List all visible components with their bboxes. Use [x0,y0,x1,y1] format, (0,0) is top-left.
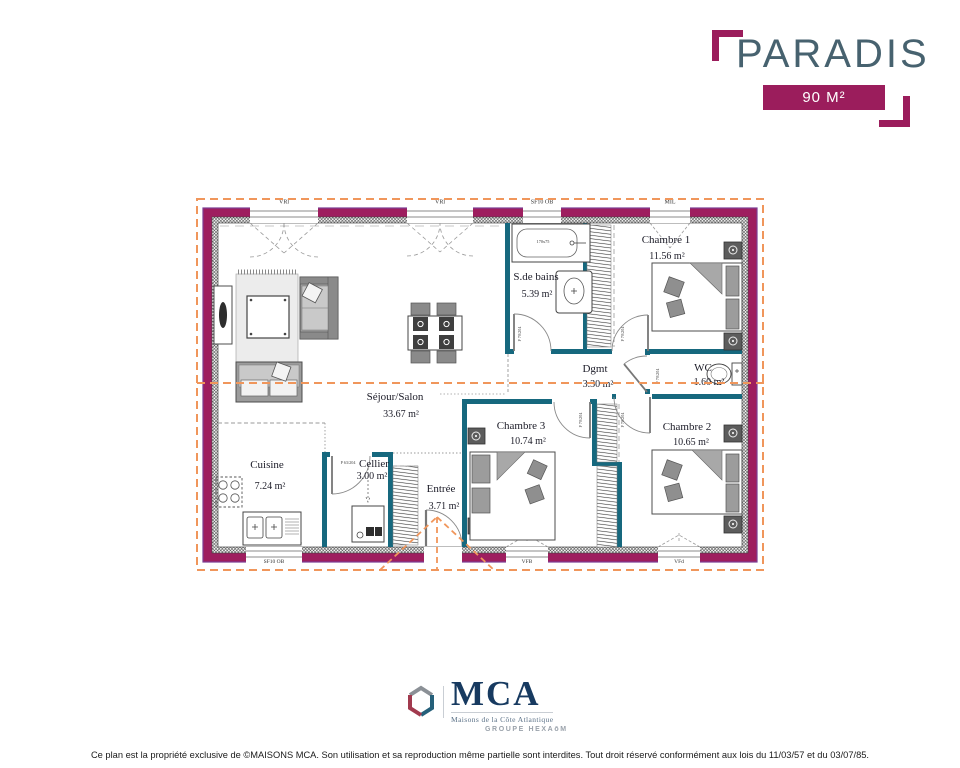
room-label-cuisine: Cuisine [250,459,284,471]
room-area-dgmt: 3.30 m² [583,379,614,390]
room-label-sejour: Séjour/Salon [367,391,424,403]
room-area-cellier: 3.00 m² [357,471,388,482]
bathtub-size-label: 170x75 [537,239,550,244]
mca-wordmark: MCA [451,674,541,714]
window-label: VFB [522,559,533,565]
room-area-cuisine: 7.24 m² [255,481,286,492]
logo-divider [443,686,444,718]
bathtub: 170x75 [512,224,590,262]
closet-upper [597,404,617,462]
window-label: VFd [674,559,684,565]
room-label-dgmt: Dgmt [582,363,607,375]
coffee-table [247,296,289,338]
room-label-ch2: Chambre 2 [663,421,712,433]
room-area-ch2: 10.65 m² [673,437,709,448]
room-label-wc: WC [694,362,712,374]
copyright-disclaimer: Ce plan est la propriété exclusive de ©M… [0,750,960,760]
window-label: SF10 OB [531,200,554,206]
door-code: P 70/204 [620,412,625,428]
mca-cube-logo [405,684,437,720]
window-label: VRl [435,200,445,206]
door-code: P 70/204 [517,326,522,342]
door-code: P 70/204 [620,326,625,342]
bathroom-sink [556,271,592,313]
room-label-entree: Entrée [427,483,456,495]
mca-subtitle: Maisons de la Côte Atlantique [451,712,553,724]
mca-logo-block: MCA Maisons de la Côte Atlantique GROUPE… [405,682,605,740]
room-label-sdb: S.de bains [513,271,558,283]
room-area-sejour: 33.67 m² [383,409,419,420]
room-area-ch1: 11.56 m² [649,251,684,262]
closet-entree [393,466,418,545]
room-label-ch1: Chambre 1 [642,234,691,246]
kitchen-sink [243,512,301,545]
window-label: SF10 OB [264,559,285,565]
mca-group-label: GROUPE HEXAōM [485,726,568,733]
room-area-entree: 3.71 m² [429,501,460,512]
door-code: P 70/204 [578,412,583,428]
room-label-cellier: Cellier [359,458,389,470]
window-label: VRl [279,200,289,206]
window-bathroom: SF10 OB [523,200,561,228]
floor-plan-svg: VRl VRl SF10 OB MIL SF10 OB [0,0,960,768]
door-code: P 70/204 [655,368,660,384]
room-area-ch3: 10.74 m² [510,436,546,447]
page: PARADIS 90 M² [0,0,960,768]
closet-lower [597,466,617,547]
room-label-ch3: Chambre 3 [497,420,546,432]
room-area-sdb: 5.39 m² [522,289,553,300]
door-code: P 63/204 [341,460,357,465]
tv-console [214,286,232,344]
window-label: MIL [665,200,676,206]
sofa-side [300,277,338,339]
